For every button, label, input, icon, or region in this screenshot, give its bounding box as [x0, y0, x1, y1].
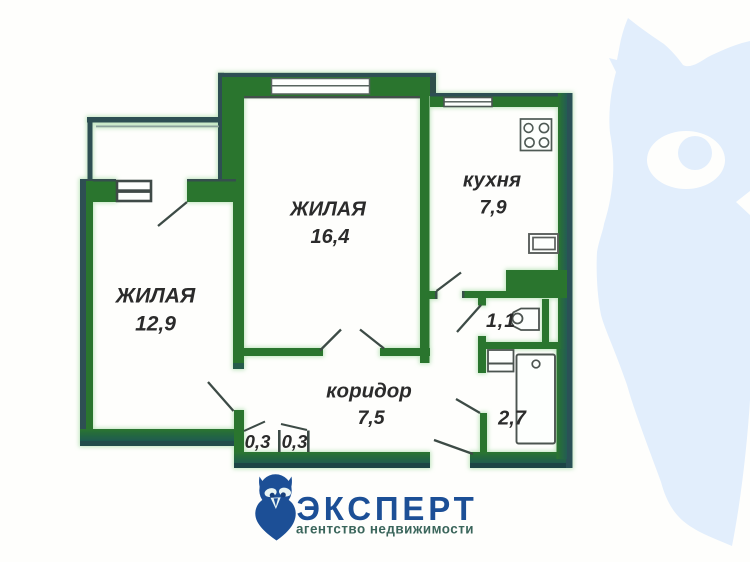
svg-text:ЖИЛАЯ: ЖИЛАЯ [115, 285, 196, 308]
svg-text:кухня: кухня [463, 169, 521, 192]
svg-text:0,3: 0,3 [245, 431, 271, 452]
svg-text:1,1: 1,1 [486, 310, 516, 332]
svg-text:0,3: 0,3 [282, 431, 308, 452]
svg-text:коридор: коридор [326, 380, 412, 403]
svg-text:7,5: 7,5 [357, 407, 385, 429]
svg-text:2,7: 2,7 [497, 408, 527, 430]
svg-text:7,9: 7,9 [479, 197, 506, 219]
svg-text:12,9: 12,9 [135, 313, 176, 336]
svg-text:ЖИЛАЯ: ЖИЛАЯ [289, 199, 366, 221]
svg-text:16,4: 16,4 [311, 226, 350, 248]
svg-text:агентство недвижимости: агентство недвижимости [296, 522, 474, 537]
